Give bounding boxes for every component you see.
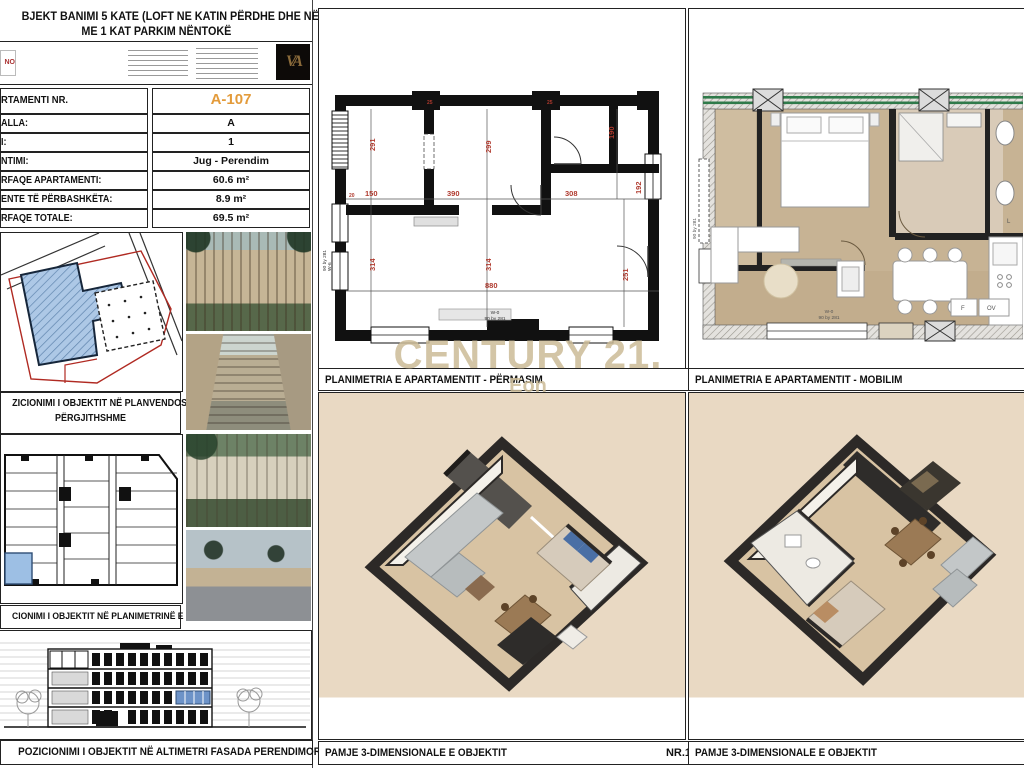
architect-logo-fragment: NO [0,50,16,76]
row-label: RTAMENTI NR. [1,89,68,111]
caption-text: PËRGJITHSHME [55,411,126,426]
wall-tick: 20 [349,193,355,199]
window-label-size: 90 by 281 [692,218,698,239]
table-row: RTAMENTI NR. A-107 [0,88,312,112]
fridge-label: F [961,306,965,312]
apartment-location-highlight [5,553,32,584]
row-value: 8.9 m² [152,190,310,209]
dim-251: 251 [621,268,630,281]
view3d-1-box [318,392,686,740]
dimensioned-plan-box: 291 299 190 192 314 314 251 150 390 308 … [318,8,686,370]
floor-key-plan-drawing [1,435,180,601]
furnished-plan-caption: PLANIMETRIA E APARTAMENTIT - MOBILIM [688,368,1024,391]
caption-text: PLANIMETRIA E APARTAMENTIT - PËRMASIM [325,374,543,386]
view3d-1-caption: PAMJE 3-DIMENSIONALE E OBJEKTIT NR.1 [318,741,698,765]
window-label-code: W-6 [327,262,333,271]
dim-190: 190 [607,126,616,139]
dimensioned-plan-drawing: 291 299 190 192 314 314 251 150 390 308 … [319,9,683,367]
table-row: NTIMI: Jug - Perendim [0,152,312,169]
row-value: 69.5 m² [152,209,310,228]
window-label-code: W-0 [491,310,500,316]
fine-print-block-2 [196,46,258,80]
caption-text: POZICIONIMI I OBJEKTIT NË ALTIMETRI FASA… [18,741,327,763]
row-label: RFAQE APARTAMENTI: [1,172,101,189]
row-label: NTIMI: [1,153,28,170]
window-label-size: 90 by 281 [484,316,505,322]
view3d-1-drawing [319,393,683,737]
view3d-2-box [688,392,1024,740]
dim-308: 308 [565,189,578,198]
caption-text: ZICIONIMI I OBJEKTIT NË PLANVENDOSJEN E [12,396,213,411]
dim-150: 150 [365,189,378,198]
table-row: ALLA: A [0,114,312,131]
row-value: A [152,114,310,133]
dim-192: 192 [634,181,643,194]
building-render-photo-4 [186,530,311,621]
oven-label: OV [987,306,996,312]
row-label: ALLA: [1,115,28,132]
floor-key-plan-box [0,434,183,604]
floor-plan-caption: CIONIMI I OBJEKTIT NË PLANIMETRINË E KAT… [0,605,181,629]
site-plan-drawing [1,233,182,391]
window-label-code: W-0 [825,309,834,315]
table-row: RFAQE APARTAMENTI: 60.6 m² [0,171,312,188]
site-plan-box [0,232,183,392]
dim-299: 299 [484,140,493,153]
row-value: Jug - Perendim [152,152,310,171]
wall-tick: 25 [547,100,553,106]
row-value: 60.6 m² [152,171,310,190]
sheet-title: BJEKT BANIMI 5 KATE (LOFT NE KATIN PËRDH… [0,0,312,42]
dim-314-b: 314 [484,258,493,271]
elevation-drawing [0,631,310,737]
building-render-photo-1 [186,232,311,331]
dim-880: 880 [485,281,498,290]
window-label-size: 90 by 281 [818,315,839,321]
left-column: BJEKT BANIMI 5 KATE (LOFT NE KATIN PËRDH… [0,0,313,768]
dim-390: 390 [447,189,460,198]
view3d-2-drawing [689,393,1023,737]
dim-314-a: 314 [368,258,377,271]
table-row: I: 1 [0,133,312,150]
furnished-plan-drawing: F OV L W-0 90 by 281 90 by 281 [689,9,1023,367]
row-label: ENTE TË PËRBASHKËTA: [1,191,112,208]
view3d-2-caption: PAMJE 3-DIMENSIONALE E OBJEKTIT [688,741,1024,765]
caption-text: CIONIMI I OBJEKTIT NË PLANIMETRINË E KAT… [12,606,210,627]
apartment-number-value: A-107 [152,88,310,114]
caption-text: PAMJE 3-DIMENSIONALE E OBJEKTIT [325,747,507,759]
elevation-caption: POZICIONIMI I OBJEKTIT NË ALTIMETRI FASA… [0,740,313,765]
table-row: RFAQE TOTALE: 69.5 m² [0,209,312,226]
dim-291: 291 [368,138,377,151]
row-label: RFAQE TOTALE: [1,210,73,227]
site-plan-caption: ZICIONIMI I OBJEKTIT NË PLANVENDOSJEN E … [0,392,181,434]
building-render-photo-3 [186,434,311,527]
title-line-2: ME 1 KAT PARKIM NËNTOKË [81,24,231,38]
furnished-plan-box: F OV L W-0 90 by 281 90 by 281 [688,8,1024,370]
building-render-photo-2 [186,334,311,430]
caption-text: PLANIMETRIA E APARTAMENTIT - MOBILIM [695,374,902,386]
row-label: I: [1,134,6,151]
caption-text: PAMJE 3-DIMENSIONALE E OBJEKTIT [695,747,877,759]
building-footprint-phase2 [95,281,165,351]
wall-tick: 25 [427,100,433,106]
elevation-box [0,630,312,740]
plan-sheet: BJEKT BANIMI 5 KATE (LOFT NE KATIN PËRDH… [0,0,1024,768]
row-value: 1 [152,133,310,152]
apartment-facade-highlight [176,691,210,704]
dimensioned-plan-caption: PLANIMETRIA E APARTAMENTIT - PËRMASIM [318,368,698,391]
table-row: ENTE TË PËRBASHKËTA: 8.9 m² [0,190,312,207]
developer-monogram-logo: VA [276,44,310,80]
fine-print-block-1 [128,48,188,78]
